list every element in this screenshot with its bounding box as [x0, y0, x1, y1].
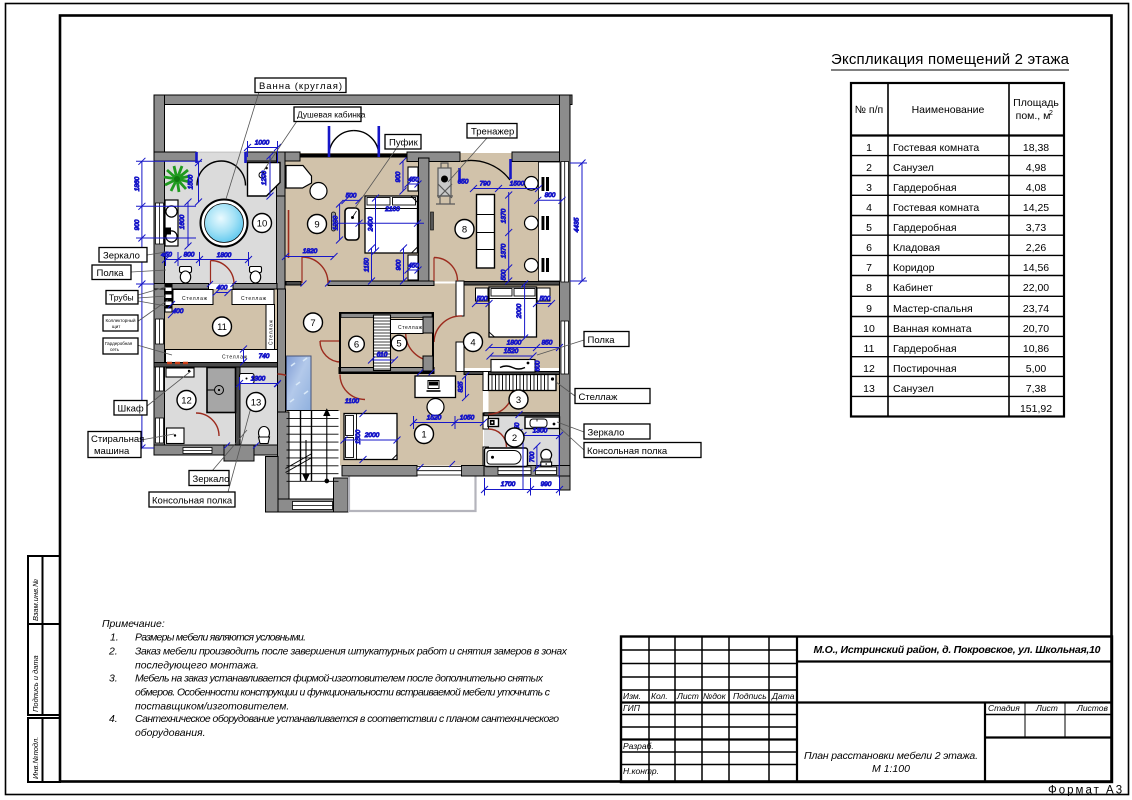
svg-text:Стадия: Стадия [988, 703, 1020, 713]
svg-text:Коридор: Коридор [893, 262, 935, 274]
svg-text:Консольная полка: Консольная полка [152, 496, 233, 507]
svg-text:20,70: 20,70 [1023, 323, 1049, 335]
svg-text:1300: 1300 [251, 376, 266, 383]
svg-text:1370: 1370 [501, 243, 508, 258]
svg-text:790: 790 [480, 181, 491, 188]
svg-text:1050: 1050 [460, 415, 475, 422]
svg-text:Мастер-спальня: Мастер-спальня [893, 303, 973, 315]
svg-text:3: 3 [866, 182, 872, 194]
svg-text:4.: 4. [109, 714, 118, 725]
svg-text:Н.контр.: Н.контр. [623, 766, 659, 776]
svg-text:900: 900 [395, 171, 402, 182]
svg-text:Полка: Полка [588, 335, 616, 346]
svg-text:2000: 2000 [516, 303, 523, 319]
svg-text:Гостевая комната: Гостевая комната [893, 142, 979, 154]
svg-text:Стеллаж: Стеллаж [398, 325, 423, 331]
svg-text:Инв.№подл.: Инв.№подл. [31, 737, 40, 779]
svg-text:Изм.: Изм. [623, 691, 641, 701]
svg-text:Санузел: Санузел [893, 162, 934, 174]
svg-text:ГИП: ГИП [623, 703, 641, 713]
svg-text:1100: 1100 [345, 398, 359, 405]
svg-text:450: 450 [408, 177, 419, 184]
svg-text:4,98: 4,98 [1026, 162, 1047, 174]
svg-text:М.О., Истринский район, д. Пок: М.О., Истринский район, д. Покровское, у… [814, 644, 1101, 656]
svg-text:План расстановки мебели 2 этаж: План расстановки мебели 2 этажа. [804, 750, 978, 762]
svg-text:13: 13 [863, 383, 875, 395]
svg-text:18,38: 18,38 [1023, 142, 1049, 154]
svg-text:10,86: 10,86 [1023, 343, 1049, 355]
svg-text:10: 10 [863, 323, 875, 335]
svg-text:1520: 1520 [427, 415, 442, 422]
svg-text:Гардеробная: Гардеробная [893, 182, 957, 194]
svg-text:Заказ мебели производить после: Заказ мебели производить после завершени… [135, 646, 568, 658]
svg-text:Стеллаж: Стеллаж [182, 296, 208, 302]
svg-text:машина: машина [94, 446, 130, 457]
svg-text:2: 2 [512, 433, 517, 444]
svg-text:Экспликация помещений 2 этажа: Экспликация помещений 2 этажа [831, 51, 1070, 68]
svg-text:1370: 1370 [501, 208, 508, 223]
svg-text:Трубы: Трубы [109, 293, 134, 303]
svg-text:1: 1 [866, 142, 872, 154]
svg-text:Стеллаж: Стеллаж [269, 319, 275, 345]
svg-text:151,92: 151,92 [1020, 403, 1052, 415]
svg-text:14,25: 14,25 [1023, 202, 1049, 214]
svg-text:650: 650 [458, 179, 469, 186]
svg-text:23,74: 23,74 [1023, 303, 1049, 315]
svg-text:№док: №док [703, 691, 727, 701]
svg-text:3.: 3. [109, 674, 118, 685]
svg-text:Взам.инв.№: Взам.инв.№ [31, 579, 40, 621]
svg-text:22,00: 22,00 [1023, 282, 1049, 294]
svg-text:Размеры мебели являются условн: Размеры мебели являются условными. [135, 632, 306, 644]
svg-text:Тренажер: Тренажер [471, 127, 514, 138]
svg-text:Гардеробная: Гардеробная [105, 341, 133, 346]
svg-text:1200: 1200 [261, 170, 268, 185]
svg-text:4: 4 [866, 202, 872, 214]
svg-text:Площадь: Площадь [1013, 97, 1059, 109]
svg-text:1800: 1800 [217, 252, 232, 259]
svg-text:6: 6 [866, 242, 872, 254]
svg-text:Листов: Листов [1076, 703, 1109, 713]
svg-text:Формат А3: Формат А3 [1048, 785, 1124, 797]
svg-text:9: 9 [314, 220, 319, 231]
svg-text:800: 800 [545, 192, 556, 199]
svg-text:600: 600 [535, 360, 542, 371]
svg-text:7: 7 [310, 318, 315, 329]
svg-text:последующего монтажа.: последующего монтажа. [135, 661, 259, 672]
svg-text:12: 12 [863, 363, 875, 375]
svg-text:Лист: Лист [1035, 703, 1058, 713]
svg-text:1.: 1. [110, 633, 119, 644]
svg-text:900: 900 [396, 259, 403, 270]
svg-text:1700: 1700 [501, 481, 516, 488]
svg-text:сеть: сеть [110, 347, 120, 352]
svg-text:обмеров. Особенности конструкц: обмеров. Особенности конструкции и функц… [135, 687, 551, 699]
svg-text:Консольная полка: Консольная полка [587, 446, 668, 457]
svg-text:5,00: 5,00 [1026, 363, 1047, 375]
svg-text:4: 4 [470, 338, 475, 349]
svg-text:825: 825 [458, 381, 465, 392]
svg-text:8: 8 [866, 282, 872, 294]
svg-text:2: 2 [1049, 110, 1053, 117]
svg-text:Коллекторный: Коллекторный [106, 317, 137, 323]
svg-text:500: 500 [501, 269, 508, 280]
svg-text:500: 500 [477, 296, 488, 303]
svg-text:Гостевая комната: Гостевая комната [893, 202, 979, 214]
svg-text:Подпись и дата: Подпись и дата [31, 655, 40, 712]
svg-text:Душевая кабинка: Душевая кабинка [297, 110, 366, 120]
svg-text:Кабинет: Кабинет [893, 282, 933, 294]
svg-text:Гардеробная: Гардеробная [893, 343, 957, 355]
svg-text:2: 2 [866, 162, 872, 174]
svg-text:11: 11 [864, 343, 875, 355]
svg-text:7,38: 7,38 [1026, 383, 1047, 395]
svg-text:Подпись: Подпись [733, 691, 767, 701]
svg-text:990: 990 [541, 481, 552, 488]
svg-text:400: 400 [217, 285, 228, 292]
svg-text:Разраб.: Разраб. [623, 741, 654, 751]
svg-text:Дата: Дата [771, 691, 795, 701]
svg-text:2100: 2100 [384, 206, 400, 213]
svg-text:Ванная комната: Ванная комната [893, 323, 972, 335]
svg-text:Ванна (круглая): Ванна (круглая) [259, 81, 342, 92]
svg-text:пом., м: пом., м [1016, 110, 1051, 122]
svg-text:10: 10 [257, 219, 268, 230]
svg-text:М 1:100: М 1:100 [872, 763, 910, 775]
svg-text:Мебель на заказ устанавливаетс: Мебель на заказ устанавливается фирмой-и… [135, 673, 544, 685]
svg-text:3,73: 3,73 [1026, 222, 1047, 234]
svg-text:Стеллаж: Стеллаж [579, 392, 618, 403]
svg-text:оборудования.: оборудования. [135, 727, 205, 739]
svg-text:1860: 1860 [134, 176, 141, 191]
svg-text:450: 450 [408, 263, 419, 270]
svg-text:1150: 1150 [364, 258, 371, 272]
svg-text:4435: 4435 [574, 217, 581, 232]
svg-text:2000: 2000 [364, 432, 380, 439]
svg-text:800: 800 [184, 252, 195, 259]
svg-text:4,08: 4,08 [1026, 182, 1047, 194]
svg-text:поставщиком/изготовителем.: поставщиком/изготовителем. [135, 702, 289, 713]
svg-text:Полка: Полка [97, 268, 125, 279]
svg-text:Лист: Лист [676, 691, 699, 701]
svg-text:3: 3 [516, 395, 521, 406]
svg-text:Наименование: Наименование [912, 104, 985, 116]
svg-text:14,56: 14,56 [1023, 262, 1049, 274]
svg-text:1800: 1800 [507, 340, 522, 347]
svg-text:Гардеробная: Гардеробная [893, 222, 957, 234]
svg-text:6: 6 [354, 340, 359, 351]
svg-text:1500: 1500 [510, 181, 525, 188]
svg-text:Сантехническое оборудование ус: Сантехническое оборудование устанавливае… [135, 713, 559, 725]
svg-text:2.: 2. [108, 647, 118, 658]
svg-text:500: 500 [540, 296, 551, 303]
svg-text:2400: 2400 [368, 216, 375, 232]
svg-text:12: 12 [181, 396, 192, 407]
svg-text:13: 13 [251, 398, 262, 409]
svg-text:1820: 1820 [303, 248, 318, 255]
svg-text:Санузел: Санузел [893, 383, 934, 395]
svg-text:11: 11 [217, 322, 227, 333]
svg-text:700: 700 [529, 451, 536, 462]
svg-text:1500: 1500 [355, 429, 362, 444]
svg-text:Зеркало: Зеркало [103, 251, 140, 262]
svg-text:Стиральная: Стиральная [91, 434, 144, 445]
svg-text:1: 1 [421, 430, 426, 441]
svg-text:Постирочная: Постирочная [893, 363, 957, 375]
svg-text:Примечание:: Примечание: [102, 619, 165, 630]
svg-text:1500: 1500 [188, 174, 195, 189]
svg-text:№ п/п: № п/п [855, 104, 883, 116]
svg-text:1200: 1200 [333, 215, 340, 230]
svg-text:9: 9 [866, 303, 872, 315]
svg-text:610: 610 [377, 352, 388, 359]
svg-text:Зеркало: Зеркало [588, 428, 625, 439]
svg-text:5: 5 [866, 222, 872, 234]
svg-text:5: 5 [396, 339, 401, 350]
svg-text:1520: 1520 [504, 348, 519, 355]
svg-text:7: 7 [866, 262, 872, 274]
svg-text:Пуфик: Пуфик [389, 138, 419, 149]
svg-text:Кол.: Кол. [651, 691, 668, 701]
svg-text:500: 500 [346, 193, 357, 200]
svg-text:850: 850 [542, 340, 553, 347]
svg-text:Шкаф: Шкаф [118, 404, 144, 415]
svg-text:1000: 1000 [255, 140, 270, 147]
svg-text:Зеркало: Зеркало [193, 474, 230, 485]
svg-text:8: 8 [462, 225, 467, 236]
svg-text:Кладовая: Кладовая [893, 242, 940, 254]
svg-text:щит: щит [112, 324, 120, 329]
svg-text:740: 740 [259, 353, 270, 360]
svg-text:1300: 1300 [533, 428, 548, 435]
svg-text:2,26: 2,26 [1026, 242, 1047, 254]
svg-text:1600: 1600 [179, 214, 186, 229]
svg-text:900: 900 [134, 219, 141, 230]
svg-text:Стеллаж: Стеллаж [241, 296, 267, 302]
